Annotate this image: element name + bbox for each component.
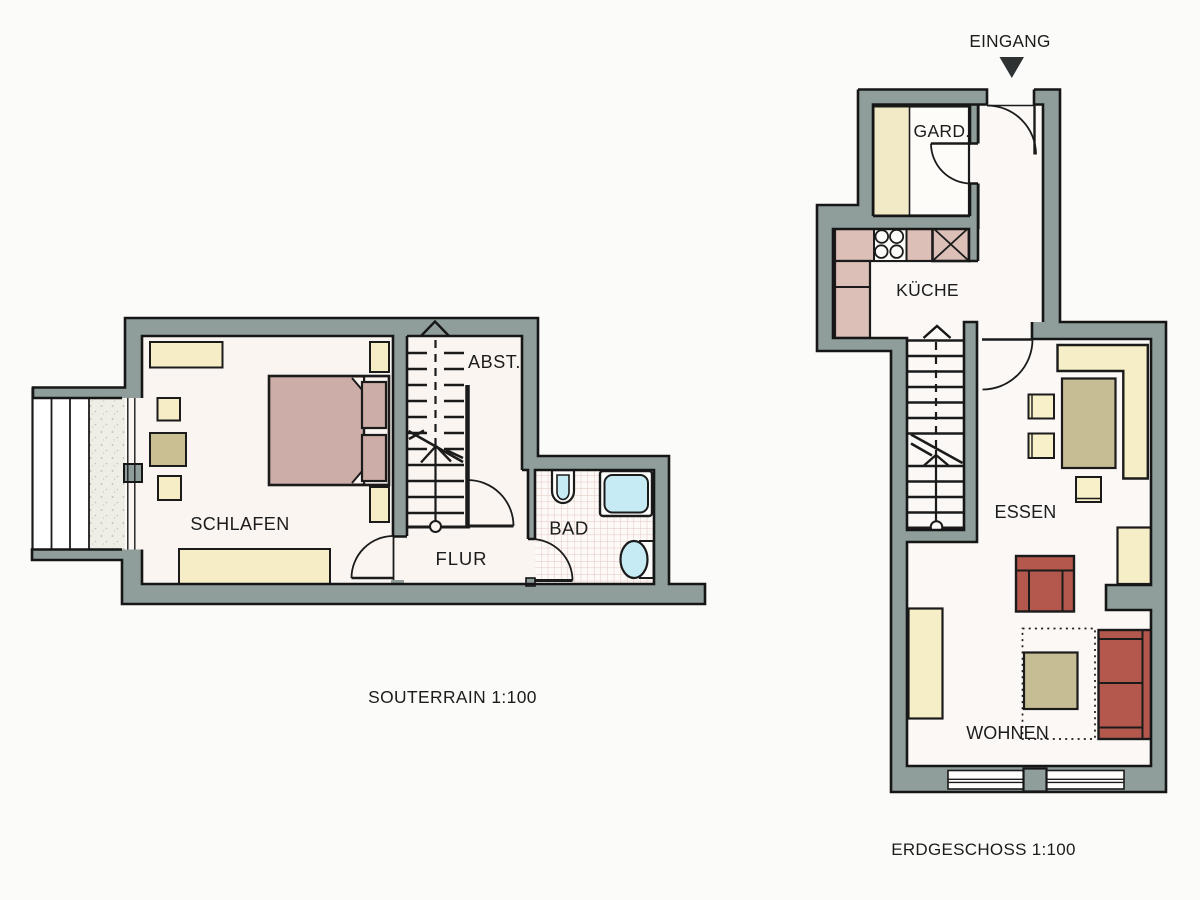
svg-text:ESSEN: ESSEN [994,502,1056,522]
svg-text:ERDGESCHOSS 1:100: ERDGESCHOSS 1:100 [891,840,1076,859]
svg-text:GARD.: GARD. [914,121,971,141]
svg-text:EINGANG: EINGANG [969,31,1050,51]
svg-text:SCHLAFEN: SCHLAFEN [190,514,289,534]
svg-text:WOHNEN: WOHNEN [966,723,1049,743]
svg-text:FLUR: FLUR [436,548,488,569]
svg-text:KÜCHE: KÜCHE [896,280,959,300]
svg-text:ABST.: ABST. [468,352,521,372]
svg-text:SOUTERRAIN 1:100: SOUTERRAIN 1:100 [368,687,537,707]
svg-text:BAD: BAD [549,518,589,539]
